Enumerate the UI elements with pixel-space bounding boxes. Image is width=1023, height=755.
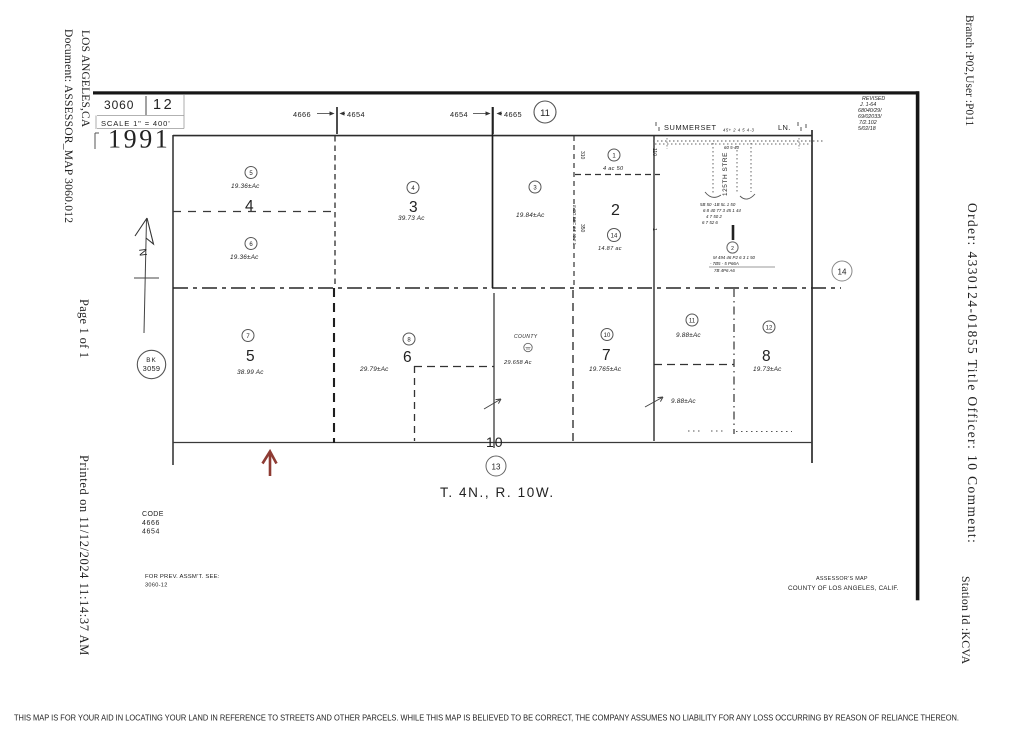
svg-text:Station Id :KCVA: Station Id :KCVA bbox=[959, 576, 973, 665]
svg-text:4: 4 bbox=[245, 198, 254, 215]
svg-text:29.79±Ac: 29.79±Ac bbox=[359, 366, 389, 373]
svg-text:LN.: LN. bbox=[778, 123, 791, 132]
svg-text:19.36±Ac: 19.36±Ac bbox=[230, 254, 259, 261]
svg-text:5/02/18: 5/02/18 bbox=[858, 126, 876, 132]
svg-text:5: 5 bbox=[246, 348, 255, 365]
svg-text:3059: 3059 bbox=[143, 364, 161, 373]
svg-text:10: 10 bbox=[604, 333, 611, 339]
svg-text:39.73 Ac: 39.73 Ac bbox=[398, 215, 425, 222]
svg-text:19.36±Ac: 19.36±Ac bbox=[231, 183, 260, 190]
svg-text:110: 110 bbox=[651, 148, 657, 156]
svg-text:6 8 40 77 3 45 1 44: 6 8 40 77 3 45 1 44 bbox=[703, 208, 741, 213]
svg-text:E.CO.SEC 3 5 40 2 1: E.CO.SEC 3 5 40 2 1 bbox=[572, 205, 577, 245]
svg-text:BK: BK bbox=[146, 357, 157, 364]
svg-text:COUNTY: COUNTY bbox=[514, 334, 538, 340]
svg-text:2: 2 bbox=[611, 202, 620, 219]
svg-text:9.88±Ac: 9.88±Ac bbox=[671, 398, 696, 405]
svg-text:12: 12 bbox=[153, 97, 174, 113]
svg-text:8: 8 bbox=[762, 348, 771, 365]
svg-text:T. 4N., R. 10W.: T. 4N., R. 10W. bbox=[440, 485, 555, 500]
svg-text:19.73±Ac: 19.73±Ac bbox=[753, 366, 782, 373]
svg-text:4654: 4654 bbox=[142, 529, 160, 536]
svg-text:Order: 4330124-01855 Title Of: Order: 4330124-01855 Title Officer: 10 C… bbox=[965, 203, 980, 544]
svg-text:3: 3 bbox=[409, 199, 418, 216]
svg-text:- 7B5 - 5 P66A: - 7B5 - 5 P66A bbox=[710, 261, 739, 266]
svg-text:7B 4P6 A6: 7B 4P6 A6 bbox=[714, 268, 735, 273]
svg-text:2: 2 bbox=[731, 246, 734, 252]
svg-text:ASSESSOR’S MAP: ASSESSOR’S MAP bbox=[816, 576, 868, 582]
svg-text:45+ 2 4 5 4-3: 45+ 2 4 5 4-3 bbox=[723, 128, 754, 133]
svg-text:4 7 50 2: 4 7 50 2 bbox=[706, 214, 722, 219]
svg-text:3060: 3060 bbox=[104, 98, 134, 112]
svg-text:4665: 4665 bbox=[504, 110, 522, 119]
svg-text:38.99 Ac: 38.99 Ac bbox=[237, 369, 264, 376]
svg-text:M 494 46 P2 6 3 1 50: M 494 46 P2 6 3 1 50 bbox=[713, 255, 756, 260]
svg-text:350: 350 bbox=[579, 224, 585, 233]
svg-text:19.84±Ac: 19.84±Ac bbox=[516, 212, 545, 219]
svg-text:13: 13 bbox=[492, 463, 501, 472]
svg-text:14: 14 bbox=[838, 268, 847, 277]
svg-text:Branch :P02,User :P011: Branch :P02,User :P011 bbox=[963, 15, 975, 126]
svg-text:4654: 4654 bbox=[347, 110, 365, 119]
svg-text:SUMMERSET: SUMMERSET bbox=[664, 123, 717, 132]
svg-text:6: 6 bbox=[403, 349, 412, 366]
svg-text:29.658 ⁭Ac: 29.658 ⁭Ac bbox=[503, 360, 532, 366]
svg-text:11: 11 bbox=[689, 319, 696, 325]
svg-text:5B 50 -1B 5L 1 50: 5B 50 -1B 5L 1 50 bbox=[700, 202, 736, 207]
svg-text:LOS ANGELES,CA: LOS ANGELES,CA bbox=[79, 30, 91, 128]
svg-text:7: 7 bbox=[602, 347, 611, 364]
svg-text:CODE: CODE bbox=[142, 511, 164, 518]
svg-text:4666: 4666 bbox=[293, 110, 311, 119]
svg-text:1: 1 bbox=[651, 228, 657, 231]
svg-text:14: 14 bbox=[611, 234, 618, 240]
svg-text:3060-12: 3060-12 bbox=[145, 583, 168, 589]
svg-text:Page 1 of 1: Page 1 of 1 bbox=[77, 299, 91, 358]
svg-text:14.87 ac: 14.87 ac bbox=[598, 246, 622, 252]
svg-text:Document: ASSESSOR_MAP 3060.01: Document: ASSESSOR_MAP 3060.012 bbox=[62, 29, 75, 223]
svg-text:4654: 4654 bbox=[450, 110, 468, 119]
svg-text:1991: 1991 bbox=[108, 125, 170, 154]
svg-text:FOR PREV. ASSM’T. SEE:: FOR PREV. ASSM’T. SEE: bbox=[145, 574, 220, 580]
svg-text:4 ac 50: 4 ac 50 bbox=[603, 166, 624, 172]
svg-text:19.765±Ac: 19.765±Ac bbox=[589, 366, 622, 373]
svg-text:COUNTY OF LOS ANGELES, CALIF.: COUNTY OF LOS ANGELES, CALIF. bbox=[788, 585, 899, 592]
svg-text:125TH STRE: 125TH STRE bbox=[722, 152, 729, 196]
svg-text:310: 310 bbox=[579, 151, 585, 160]
svg-text:THIS MAP IS FOR YOUR AID IN LO: THIS MAP IS FOR YOUR AID IN LOCATING YOU… bbox=[14, 714, 959, 723]
svg-text:Printed on 11/12/2024 11:14:37: Printed on 11/12/2024 11:14:37 AM bbox=[77, 455, 91, 656]
svg-text:11: 11 bbox=[540, 108, 550, 119]
svg-text:6 7 52 6: 6 7 52 6 bbox=[702, 220, 718, 225]
svg-text:10: 10 bbox=[486, 434, 504, 450]
svg-text:N: N bbox=[136, 248, 149, 257]
svg-text:12: 12 bbox=[766, 326, 773, 332]
svg-text:9.88±Ac: 9.88±Ac bbox=[676, 332, 701, 339]
svg-text:4666: 4666 bbox=[142, 520, 160, 527]
